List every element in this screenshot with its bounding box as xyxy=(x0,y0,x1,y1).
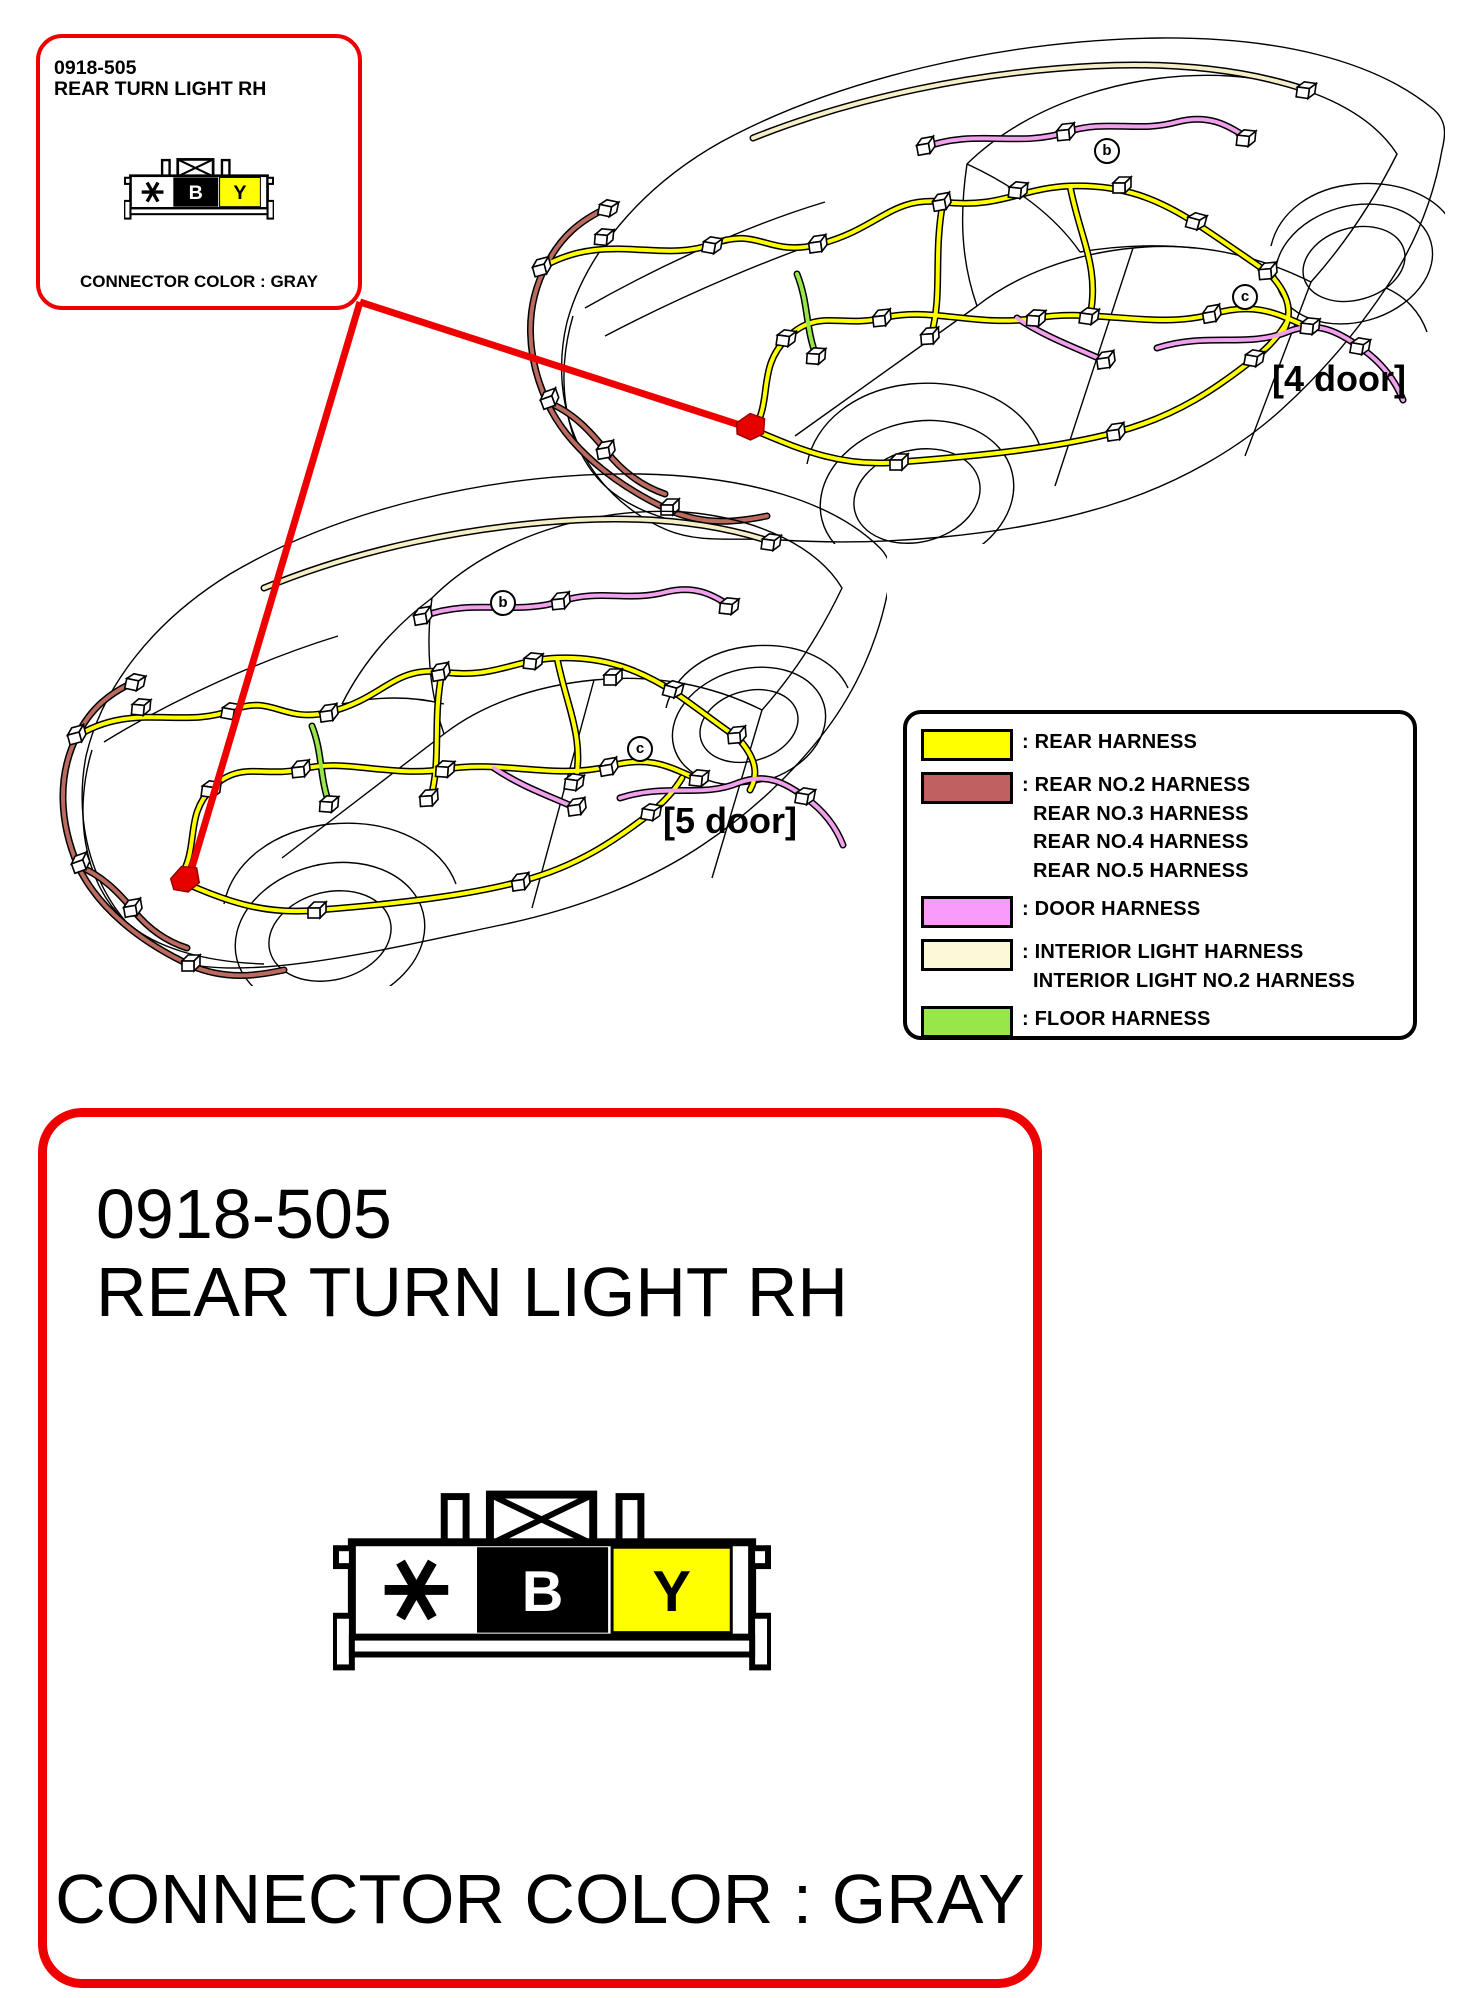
detail-part-number: 0918-505 xyxy=(96,1175,848,1253)
legend-row-rear-no2: : REAR NO.2 HARNESS REAR NO.3 HARNESS RE… xyxy=(921,771,1401,885)
circle-marker-c-4door: c xyxy=(1232,284,1258,310)
callout-part-number: 0918-505 xyxy=(54,58,266,79)
floor-harness-4door xyxy=(797,274,817,358)
legend-row-rear: : REAR HARNESS xyxy=(921,728,1401,761)
legend-swatch-rear-no2 xyxy=(921,772,1013,804)
legend-label: : FLOOR HARNESS xyxy=(1022,1005,1211,1034)
legend-swatch-door xyxy=(921,896,1013,928)
legend-label: : REAR NO.2 HARNESS xyxy=(1022,771,1250,800)
connector-diagram-small xyxy=(124,158,274,220)
legend-label: REAR NO.5 HARNESS xyxy=(1022,857,1250,886)
detail-box: 0918-505 REAR TURN LIGHT RH CONNECTOR CO… xyxy=(38,1108,1042,1988)
car-5door-outline xyxy=(82,474,887,986)
legend-label: : DOOR HARNESS xyxy=(1022,895,1200,924)
page: { "callout_box": { "part_number": "0918-… xyxy=(0,0,1472,1998)
rear-harness-5door xyxy=(74,658,755,911)
detail-title: 0918-505 REAR TURN LIGHT RH xyxy=(96,1175,848,1331)
legend-row-door: : DOOR HARNESS xyxy=(921,895,1401,928)
callout-part-name: REAR TURN LIGHT RH xyxy=(54,79,266,100)
legend-row-floor: : FLOOR HARNESS xyxy=(921,1005,1401,1038)
label-5door: [5 door] xyxy=(663,800,797,842)
legend-label: : REAR HARNESS xyxy=(1022,728,1197,757)
legend-row-interior-light: : INTERIOR LIGHT HARNESS INTERIOR LIGHT … xyxy=(921,938,1401,995)
label-4door: [4 door] xyxy=(1272,358,1406,400)
callout-connector-color-label: CONNECTOR COLOR : GRAY xyxy=(40,272,358,292)
legend-label: REAR NO.3 HARNESS xyxy=(1022,800,1250,829)
harness-outlines xyxy=(63,519,843,976)
connector-blocks-5door xyxy=(66,533,815,971)
callout-title: 0918-505 REAR TURN LIGHT RH xyxy=(54,58,266,100)
circle-marker-b-4door: b xyxy=(1094,138,1120,164)
interior-light-harness-5door xyxy=(264,519,772,588)
legend-label: REAR NO.4 HARNESS xyxy=(1022,828,1250,857)
legend-swatch-floor xyxy=(921,1006,1013,1038)
detail-part-name: REAR TURN LIGHT RH xyxy=(96,1253,848,1331)
legend-swatch-rear xyxy=(921,729,1013,761)
circle-marker-c-5door: c xyxy=(627,736,653,762)
connector-diagram-large xyxy=(333,1490,771,1672)
car-5door-diagram xyxy=(12,438,887,986)
circle-marker-b-5door: b xyxy=(490,590,516,616)
legend-label: INTERIOR LIGHT NO.2 HARNESS xyxy=(1022,967,1355,996)
legend-label: : INTERIOR LIGHT HARNESS xyxy=(1022,938,1355,967)
detail-connector-color-label: CONNECTOR COLOR : GRAY xyxy=(47,1859,1033,1939)
harness-legend: : REAR HARNESS : REAR NO.2 HARNESS REAR … xyxy=(903,710,1417,1040)
legend-swatch-interior-light xyxy=(921,939,1013,971)
callout-box: 0918-505 REAR TURN LIGHT RH CONNECTOR CO… xyxy=(36,34,362,310)
